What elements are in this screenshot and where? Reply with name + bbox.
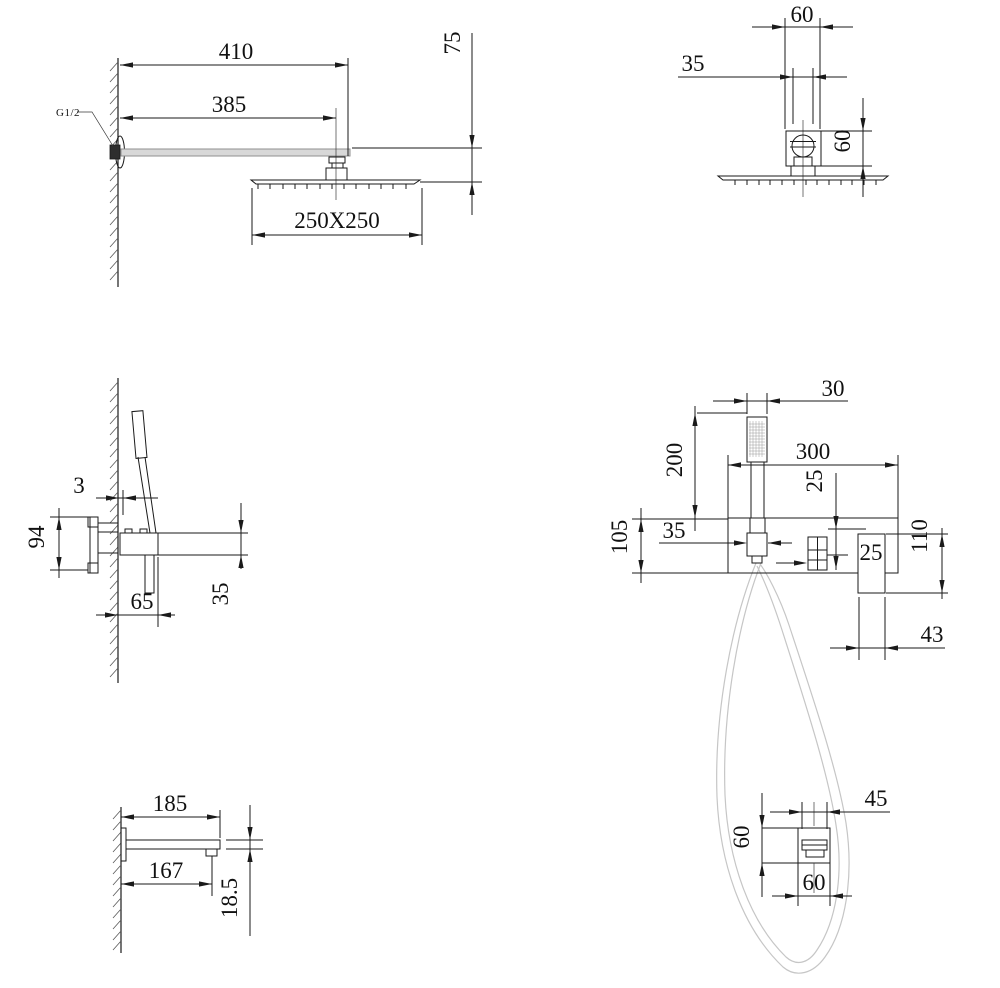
dim-label-167: 167 [149,858,184,883]
dim-label-3: 3 [73,473,85,498]
dim-label-185: 185 [153,791,188,816]
drawing-canvas: G1/2 410 385 75 [0,0,1000,988]
dim-label-18-5: 18.5 [217,878,242,918]
dim-label-200: 200 [662,443,687,478]
dim-label-105: 105 [607,520,632,555]
dim-label-35-width: 35 [682,51,705,76]
dim-label-385: 385 [212,92,247,117]
dim-label-30: 30 [822,376,845,401]
thread-label: G1/2 [56,107,80,119]
dim-label-410: 410 [219,39,254,64]
dim-label-60-height: 60 [830,130,855,153]
dim-label-65: 65 [131,589,154,614]
wall-connector [110,145,120,159]
dim-label-25-offset: 25 [802,470,827,493]
dim-label-110: 110 [907,519,932,553]
dim-label-250x250: 250X250 [294,208,380,233]
dim-label-94: 94 [24,525,49,549]
dim-label-35: 35 [663,518,686,543]
technical-drawing-page: G1/2 410 385 75 [0,0,1000,988]
dim-label-45: 45 [865,786,888,811]
dim-label-75: 75 [440,32,465,55]
dim-label-25-handle: 25 [860,540,883,565]
dim-label-60-height: 60 [729,826,754,849]
shower-arm [121,149,350,156]
dim-label-300: 300 [796,439,831,464]
dim-label-60-width: 60 [803,870,826,895]
dim-label-43: 43 [921,622,944,647]
dim-label-35: 35 [208,583,233,606]
dim-label-60-width: 60 [791,2,814,27]
